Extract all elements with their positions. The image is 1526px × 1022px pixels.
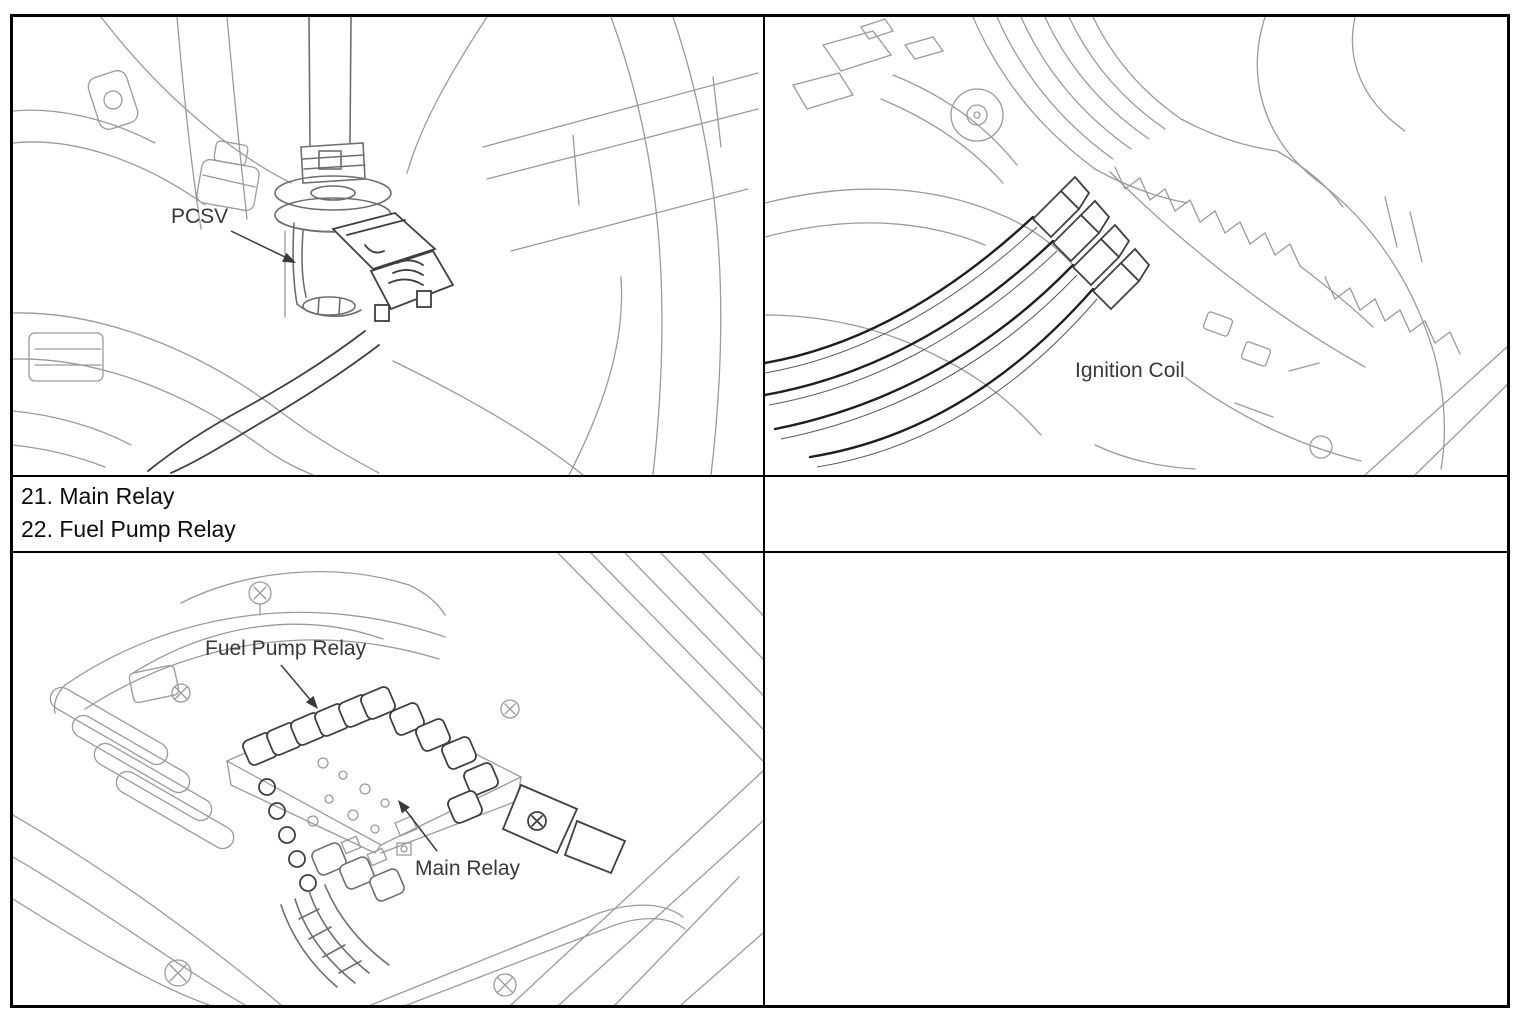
ignition-background-lines — [765, 17, 1507, 475]
cell-ignition-figure: Ignition Coil — [765, 17, 1507, 477]
fuel-pump-relay-leader — [281, 665, 313, 703]
cell-pcsv-figure: PCSV — [13, 17, 765, 477]
ignition-illustration: Ignition Coil — [765, 17, 1507, 475]
relay-background-lines — [13, 553, 763, 1005]
ignition-coil-callout: Ignition Coil — [1075, 359, 1185, 382]
legend-item-22: 22. Fuel Pump Relay — [21, 513, 763, 546]
cell-legend: 21. Main Relay 22. Fuel Pump Relay — [13, 477, 765, 553]
spark-plug-wires — [765, 217, 1097, 467]
pcsv-leader-line — [231, 231, 289, 259]
pcsv-callout: PCSV — [171, 205, 228, 228]
relay-box-loom — [281, 885, 389, 987]
cell-bottom-right-empty — [765, 553, 1507, 1005]
pcsv-connector — [148, 213, 453, 473]
manual-page: PCSV — [0, 0, 1526, 1022]
relay-illustration: Fuel Pump Relay Main Relay — [13, 553, 763, 1005]
manual-table: PCSV — [10, 14, 1510, 1008]
relay-box-side-bracket — [503, 785, 625, 873]
ignition-callout-group: Ignition Coil — [1075, 359, 1185, 382]
pcsv-illustration: PCSV — [13, 17, 763, 475]
pcsv-callout-group: PCSV — [171, 205, 296, 263]
main-relay-arrowhead — [398, 800, 410, 813]
fuel-pump-relay-callout: Fuel Pump Relay — [205, 637, 367, 660]
cell-relay-figure: Fuel Pump Relay Main Relay — [13, 553, 765, 1005]
cell-legend-right-empty — [765, 477, 1507, 553]
legend-item-21: 21. Main Relay — [21, 480, 763, 513]
main-relay-callout: Main Relay — [415, 857, 521, 880]
